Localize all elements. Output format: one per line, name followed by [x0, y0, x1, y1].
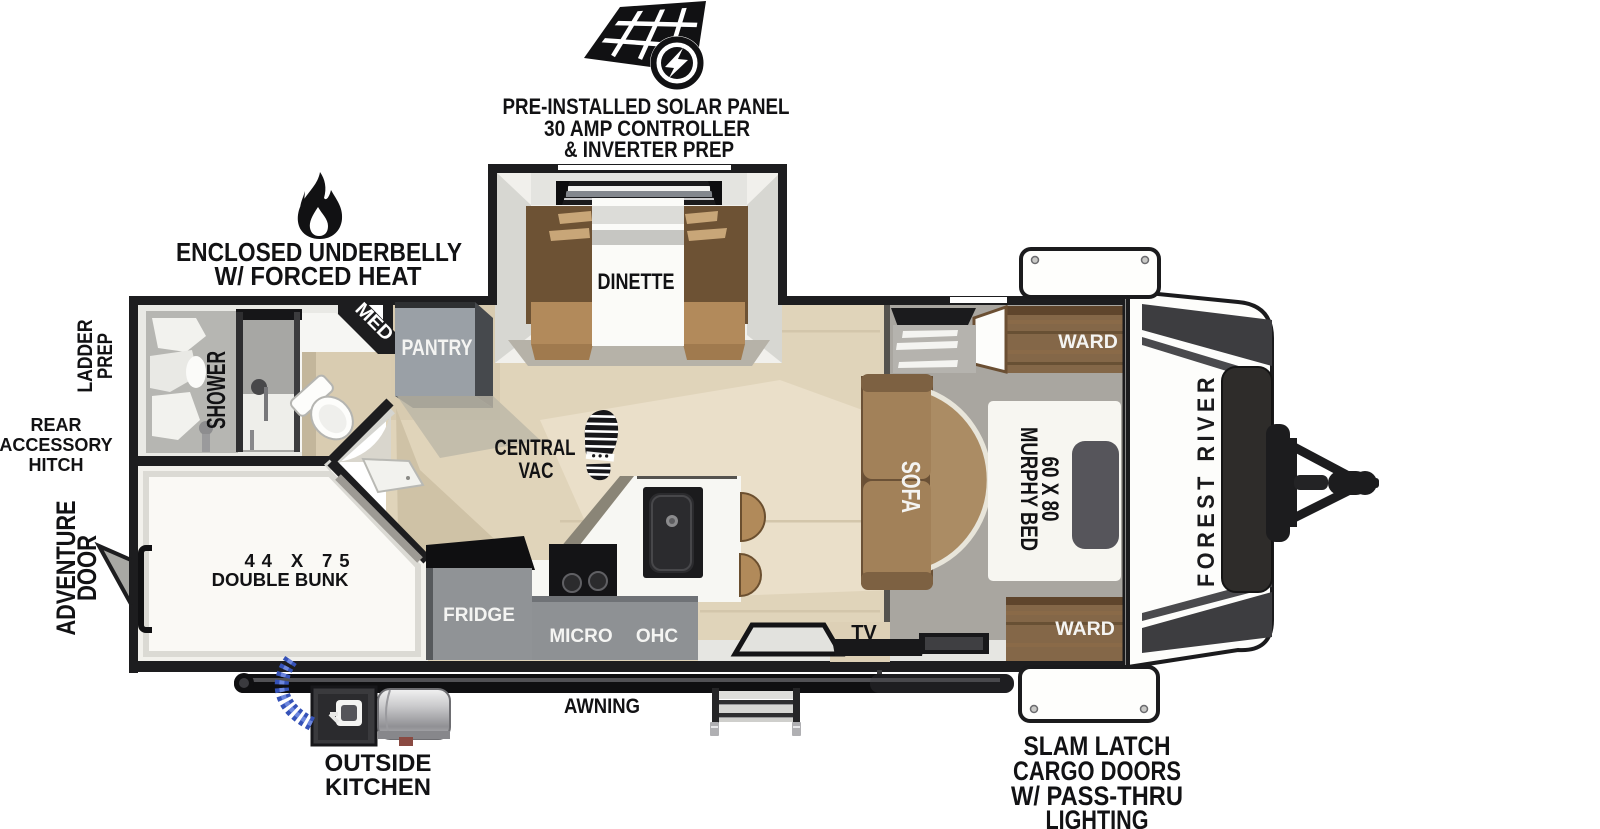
svg-text:TV: TV: [851, 622, 877, 644]
svg-text:MURPHY BED: MURPHY BED: [1015, 427, 1042, 551]
svg-text:FOREST RIVER: FOREST RIVER: [1193, 373, 1220, 587]
svg-text:SHOWER: SHOWER: [201, 351, 231, 429]
svg-text:PREP: PREP: [94, 333, 117, 379]
svg-text:MICRO: MICRO: [549, 626, 612, 647]
svg-text:DOUBLE BUNK: DOUBLE BUNK: [212, 569, 349, 590]
svg-text:CENTRAL: CENTRAL: [495, 435, 576, 460]
svg-text:ACCESSORY: ACCESSORY: [0, 435, 113, 455]
svg-text:FRIDGE: FRIDGE: [443, 605, 515, 626]
svg-text:OUTSIDE: OUTSIDE: [325, 750, 432, 777]
svg-text:DINETTE: DINETTE: [598, 269, 675, 294]
svg-text:AWNING: AWNING: [564, 695, 640, 718]
svg-text:W/ FORCED HEAT: W/ FORCED HEAT: [215, 261, 422, 291]
svg-text:REAR: REAR: [30, 415, 81, 435]
svg-text:VAC: VAC: [519, 458, 554, 483]
svg-text:WARD: WARD: [1055, 618, 1115, 640]
svg-text:OHC: OHC: [636, 626, 679, 647]
svg-text:LIGHTING: LIGHTING: [1046, 805, 1149, 829]
svg-text:PANTRY: PANTRY: [402, 335, 473, 360]
svg-text:HITCH: HITCH: [29, 455, 84, 475]
svg-text:KITCHEN: KITCHEN: [325, 774, 431, 801]
svg-text:WARD: WARD: [1058, 331, 1118, 353]
svg-text:SOFA: SOFA: [896, 461, 926, 513]
svg-text:DOOR: DOOR: [72, 535, 102, 601]
svg-text:& INVERTER PREP: & INVERTER PREP: [564, 137, 734, 162]
